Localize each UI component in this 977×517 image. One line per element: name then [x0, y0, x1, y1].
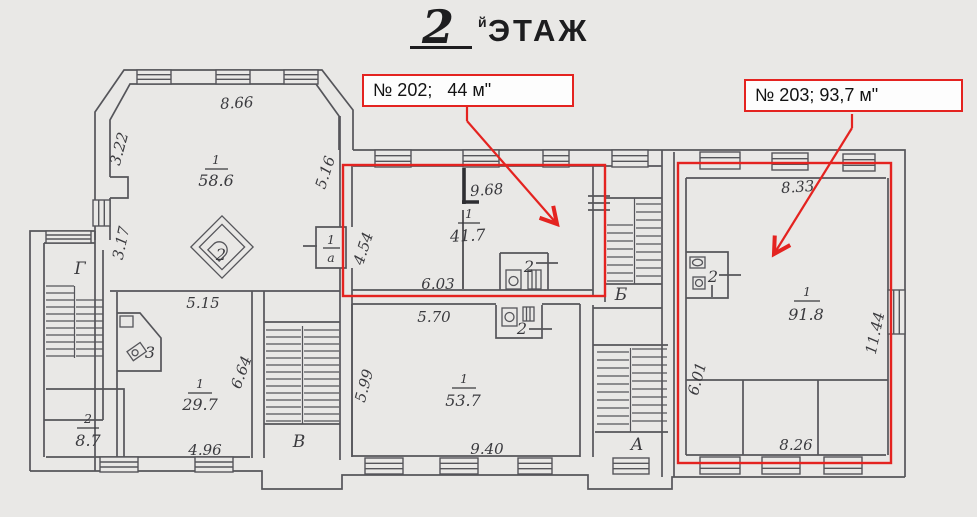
room-41-num: 1 [465, 206, 473, 221]
dim-5-15: 5.15 [186, 294, 219, 312]
dim-6-03: 6.03 [421, 275, 454, 293]
dim-5-99: 5.99 [351, 367, 377, 404]
toilet-fixture [127, 342, 146, 360]
dim-4-96: 4.96 [187, 441, 222, 459]
stairwell-b-label: Б [614, 285, 628, 305]
dim-3-17: 3.17 [109, 224, 134, 261]
wc3-label: 3 [145, 343, 155, 362]
dim-8-66: 8.66 [220, 93, 255, 113]
window [824, 457, 862, 474]
stairs-v-treads [266, 326, 339, 424]
room-91-num: 1 [803, 284, 811, 299]
window [284, 70, 318, 84]
dim-11-44: 11.44 [862, 310, 889, 356]
dim-9-40: 9.40 [470, 440, 504, 458]
room-58-area: 58.6 [198, 171, 234, 190]
room-a-area: а [327, 250, 334, 265]
scanned-floor-plan-page: 8.66 3.22 3.17 5.16 5.15 6.64 4.96 9.68 … [0, 0, 977, 517]
floor-word: ЭТАЖ [488, 13, 589, 49]
dim-5-16: 5.16 [312, 153, 340, 191]
window [440, 458, 478, 474]
window [700, 152, 740, 169]
window [613, 458, 649, 474]
callout-room-203: № 203; 93,7 м" [744, 79, 963, 112]
floor-title: 2 й ЭТАЖ [408, 4, 628, 56]
stairwell-g-label: Г [73, 259, 86, 279]
room-29-area: 29.7 [181, 395, 218, 414]
dim-6-01: 6.01 [684, 360, 710, 397]
dim-8-26: 8.26 [779, 436, 813, 454]
stairs-a-treads [597, 348, 667, 432]
wall-stair-strip [593, 150, 686, 477]
window [93, 200, 110, 226]
floor-suffix: й [478, 14, 487, 30]
window [100, 457, 138, 472]
wall-202-right [588, 166, 610, 302]
leader-arrow-202 [467, 121, 557, 224]
stairwell-labels: Г В Б А [73, 259, 643, 455]
fixture [120, 316, 133, 327]
inner-wall-bottom [46, 455, 886, 457]
wall-junction [340, 116, 352, 460]
window [518, 458, 552, 474]
floor-number-underline [410, 46, 472, 49]
dim-5-70: 5.70 [417, 308, 451, 326]
window [365, 458, 403, 474]
room-53-area: 53.7 [445, 391, 481, 410]
room-91-area: 91.8 [788, 305, 824, 324]
room-a-num: 1 [327, 232, 335, 247]
bathroom-203-fixtures [690, 257, 705, 289]
window [612, 150, 648, 167]
stairwell-v-label: В [292, 432, 306, 452]
highlight-rect-203 [678, 163, 891, 463]
wc203-label: 2 [707, 267, 718, 286]
wall-537 [352, 304, 593, 457]
room-53-num: 1 [460, 371, 468, 386]
room-8-num: 2 [83, 411, 92, 426]
dim-9-68: 9.68 [469, 180, 504, 200]
room-8-area: 8.7 [75, 431, 101, 450]
room-29-num: 1 [196, 376, 204, 391]
window [137, 70, 171, 84]
alcove-202-label: 2 [523, 257, 534, 276]
window [46, 231, 91, 243]
wall-room-3 [117, 313, 161, 371]
window [216, 70, 250, 84]
callout-room-202: № 202; 44 м" [362, 74, 574, 107]
dim-4-54: 4.54 [349, 230, 377, 268]
stairs-b-treads [607, 198, 661, 284]
alcove-537-label: 2 [516, 319, 527, 338]
stove-label: 2 [215, 245, 226, 264]
room-58-num: 1 [212, 152, 220, 167]
stairwell-a-label: А [630, 435, 644, 455]
building-walls [30, 70, 905, 489]
window [772, 153, 808, 170]
room-41-area: 41.7 [448, 225, 486, 246]
wall-29-right [252, 291, 264, 458]
window [195, 457, 233, 472]
dim-8-33: 8.33 [780, 177, 815, 197]
window [700, 457, 740, 474]
window [762, 457, 800, 474]
